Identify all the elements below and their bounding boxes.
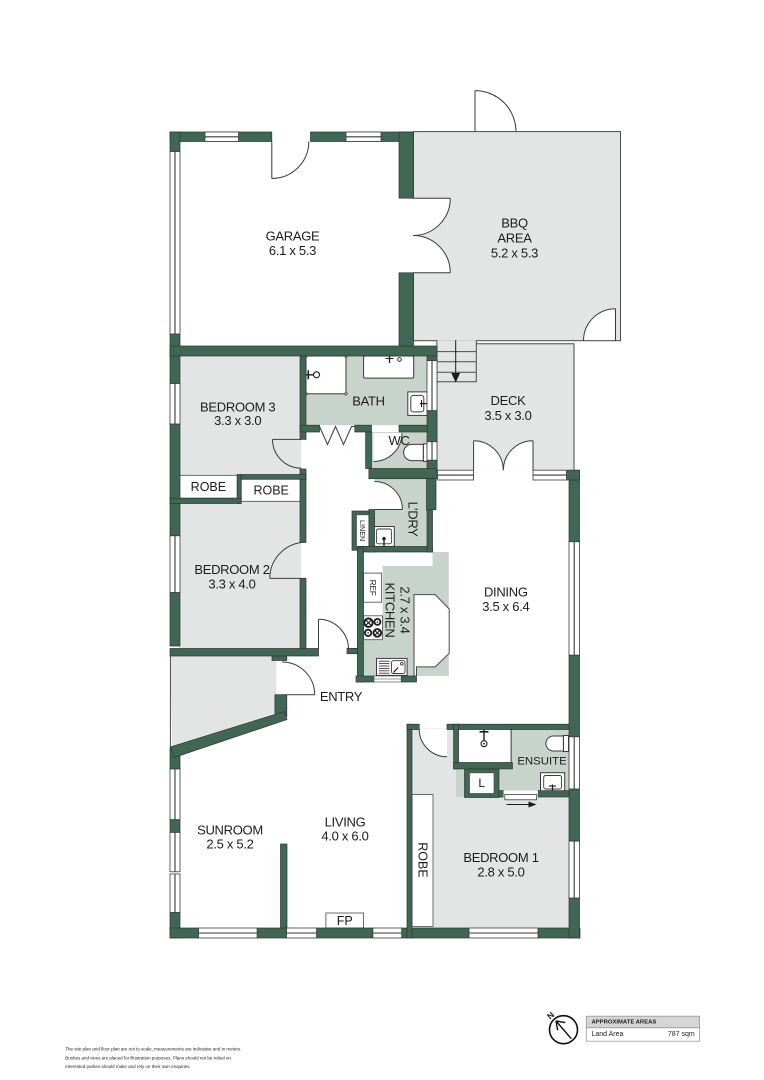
svg-text:APPROXIMATE AREAS: APPROXIMATE AREAS <box>592 1020 657 1026</box>
svg-text:DECK: DECK <box>491 393 527 408</box>
svg-text:Land Area: Land Area <box>592 1031 624 1038</box>
svg-text:REF: REF <box>368 580 377 596</box>
svg-text:3.3 x 3.0: 3.3 x 3.0 <box>214 413 261 428</box>
svg-text:Bushes and trees are placed fo: Bushes and trees are placed for illustra… <box>65 1055 232 1060</box>
svg-text:LINEN: LINEN <box>358 520 367 541</box>
svg-text:The site plan and floor plan a: The site plan and floor plan are not to … <box>65 1047 241 1052</box>
svg-text:6.1 x 5.3: 6.1 x 5.3 <box>269 243 316 258</box>
svg-text:KITCHEN: KITCHEN <box>383 583 398 638</box>
svg-text:L: L <box>478 776 485 790</box>
svg-text:L’DRY: L’DRY <box>406 501 421 537</box>
svg-text:2.7 x 3.4: 2.7 x 3.4 <box>398 586 413 633</box>
svg-text:AREA: AREA <box>497 230 532 245</box>
svg-text:787 sqm: 787 sqm <box>668 1031 695 1038</box>
svg-text:SUNROOM: SUNROOM <box>197 823 263 838</box>
svg-text:GARAGE: GARAGE <box>266 228 320 243</box>
svg-text:WC: WC <box>388 433 409 448</box>
svg-text:BEDROOM 2: BEDROOM 2 <box>194 562 269 577</box>
svg-text:ROBE: ROBE <box>253 484 288 498</box>
svg-text:ENSUITE: ENSUITE <box>517 756 567 768</box>
svg-text:BATH: BATH <box>352 394 385 409</box>
svg-text:DINING: DINING <box>484 585 528 600</box>
svg-text:5.2 x 5.3: 5.2 x 5.3 <box>491 245 538 260</box>
svg-text:3.3 x 4.0: 3.3 x 4.0 <box>208 577 255 592</box>
svg-text:FP: FP <box>337 914 353 928</box>
svg-text:ENTRY: ENTRY <box>320 689 363 704</box>
svg-text:ROBE: ROBE <box>416 842 430 877</box>
svg-text:2.8 x 5.0: 2.8 x 5.0 <box>477 865 524 880</box>
svg-text:3.5 x 6.4: 3.5 x 6.4 <box>482 599 529 614</box>
svg-text:Interested parties should make: Interested parties should make and rely … <box>65 1064 190 1069</box>
svg-text:BBQ: BBQ <box>501 215 528 230</box>
svg-text:ROBE: ROBE <box>191 480 226 494</box>
svg-text:BEDROOM 1: BEDROOM 1 <box>463 850 538 865</box>
svg-text:LIVING: LIVING <box>325 815 366 830</box>
svg-text:4.0 x 6.0: 4.0 x 6.0 <box>321 829 368 844</box>
svg-text:3.5 x 3.0: 3.5 x 3.0 <box>484 408 531 423</box>
svg-text:2.5 x 5.2: 2.5 x 5.2 <box>206 837 253 852</box>
